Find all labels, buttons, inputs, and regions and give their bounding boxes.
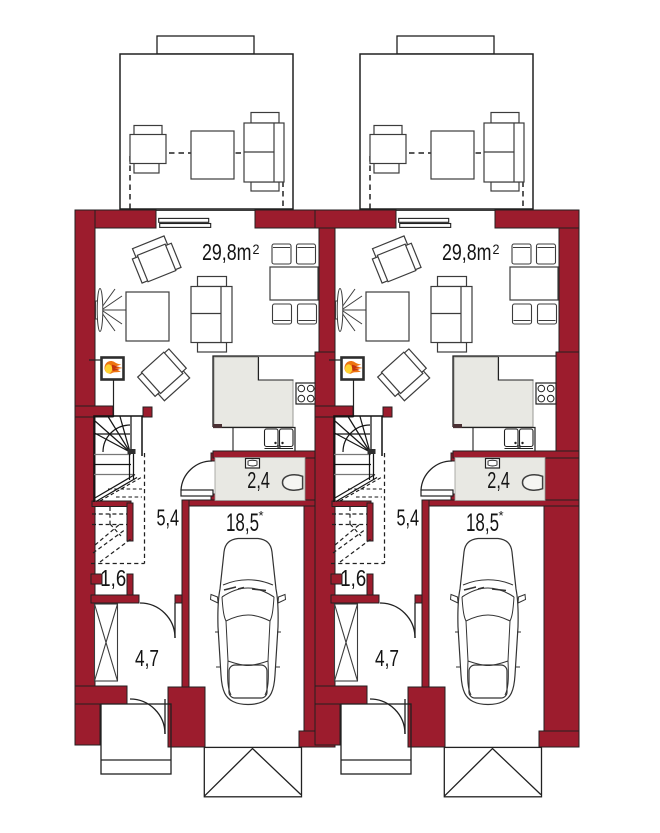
svg-text:*: * (259, 508, 264, 523)
svg-text:29,8m: 29,8m (442, 239, 492, 265)
svg-text:2: 2 (493, 241, 500, 257)
svg-text:4,7: 4,7 (375, 645, 399, 671)
svg-text:1,6: 1,6 (340, 565, 366, 591)
svg-text:5,4: 5,4 (397, 505, 420, 531)
svg-text:18,5: 18,5 (226, 509, 259, 537)
svg-text:4,7: 4,7 (135, 645, 159, 671)
svg-text:2: 2 (253, 241, 260, 257)
svg-text:*: * (499, 508, 504, 523)
svg-text:5,4: 5,4 (157, 505, 180, 531)
svg-text:2,4: 2,4 (247, 467, 270, 493)
svg-text:1,6: 1,6 (100, 565, 126, 591)
svg-text:29,8m: 29,8m (202, 239, 252, 265)
svg-text:18,5: 18,5 (466, 509, 499, 537)
svg-text:2,4: 2,4 (487, 467, 510, 493)
